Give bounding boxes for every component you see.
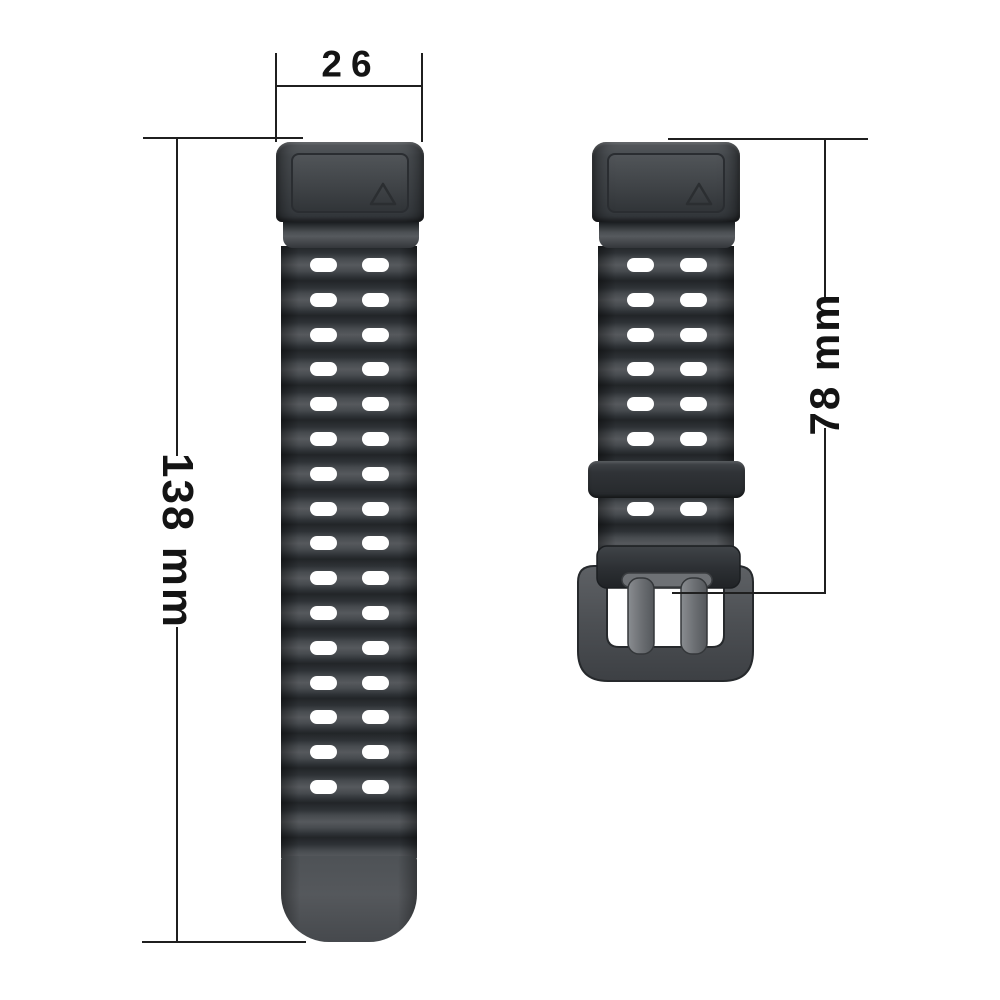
long-top-extension-line <box>143 137 303 139</box>
buckle-pin-left <box>628 578 654 654</box>
strap-hole <box>362 606 389 620</box>
long-strap-tip <box>281 856 417 942</box>
strap-hole <box>627 293 654 307</box>
long-dimension-line-upper <box>176 137 178 456</box>
strap-hole <box>680 502 707 516</box>
long-strap-lug-head <box>276 142 424 222</box>
lug-panel <box>607 153 725 213</box>
strap-hole <box>362 536 389 550</box>
strap-hole <box>362 362 389 376</box>
strap-hole <box>310 432 337 446</box>
strap-hole <box>310 710 337 724</box>
short-strap-lug-head <box>592 142 740 222</box>
strap-hole <box>310 328 337 342</box>
product-diagram: 26 138 mm 78 mm <box>0 0 1000 1000</box>
strap-hole <box>310 780 337 794</box>
strap-hole <box>627 432 654 446</box>
strap-hole <box>362 293 389 307</box>
width-extension-line-left <box>275 53 277 142</box>
strap-hole <box>627 328 654 342</box>
buckle <box>570 540 770 690</box>
strap-hole <box>680 432 707 446</box>
lug-width-label: 26 <box>321 46 380 83</box>
triangle-marker-icon <box>368 180 398 208</box>
strap-hole <box>310 397 337 411</box>
strap-hole <box>362 502 389 516</box>
long-strap-connector-lip <box>283 222 419 248</box>
short-top-extension-line <box>668 138 868 140</box>
strap-hole <box>310 362 337 376</box>
strap-hole <box>362 745 389 759</box>
strap-hole <box>680 397 707 411</box>
strap-hole <box>310 467 337 481</box>
strap-hole <box>680 328 707 342</box>
strap-hole <box>362 258 389 272</box>
strap-hole <box>362 467 389 481</box>
strap-hole <box>680 293 707 307</box>
strap-hole <box>310 606 337 620</box>
strap-hole <box>310 641 337 655</box>
strap-hole <box>680 362 707 376</box>
buckle-pin-right <box>681 578 707 654</box>
strap-hole <box>627 397 654 411</box>
strap-hole <box>627 502 654 516</box>
short-dimension-line-lower <box>824 428 826 593</box>
strap-hole <box>310 293 337 307</box>
strap-hole <box>362 328 389 342</box>
strap-hole <box>362 641 389 655</box>
short-strap-length-label: 78 mm <box>804 292 846 435</box>
strap-hole <box>362 710 389 724</box>
long-bottom-extension-line <box>142 941 306 943</box>
strap-hole <box>310 571 337 585</box>
strap-hole <box>680 258 707 272</box>
width-dimension-line <box>275 85 423 87</box>
long-strap-body <box>281 246 417 858</box>
strap-hole <box>362 780 389 794</box>
long-strap-length-label: 138 mm <box>155 453 199 629</box>
strap-hole <box>362 676 389 690</box>
short-strap-connector-lip <box>599 222 735 248</box>
strap-hole <box>362 397 389 411</box>
strap-hole <box>310 258 337 272</box>
strap-hole <box>310 745 337 759</box>
strap-hole <box>310 502 337 516</box>
width-extension-line-right <box>421 53 423 142</box>
buckle-leader-line <box>672 592 826 594</box>
triangle-marker-icon <box>684 180 714 208</box>
strap-hole <box>362 432 389 446</box>
strap-hole <box>627 362 654 376</box>
strap-hole <box>627 258 654 272</box>
short-dimension-line-upper <box>824 138 826 301</box>
strap-hole <box>310 676 337 690</box>
strap-hole <box>310 536 337 550</box>
long-dimension-line-lower <box>176 627 178 942</box>
keeper-loop <box>588 461 745 498</box>
lug-panel <box>291 153 409 213</box>
short-strap-body <box>598 246 734 560</box>
strap-hole <box>362 571 389 585</box>
